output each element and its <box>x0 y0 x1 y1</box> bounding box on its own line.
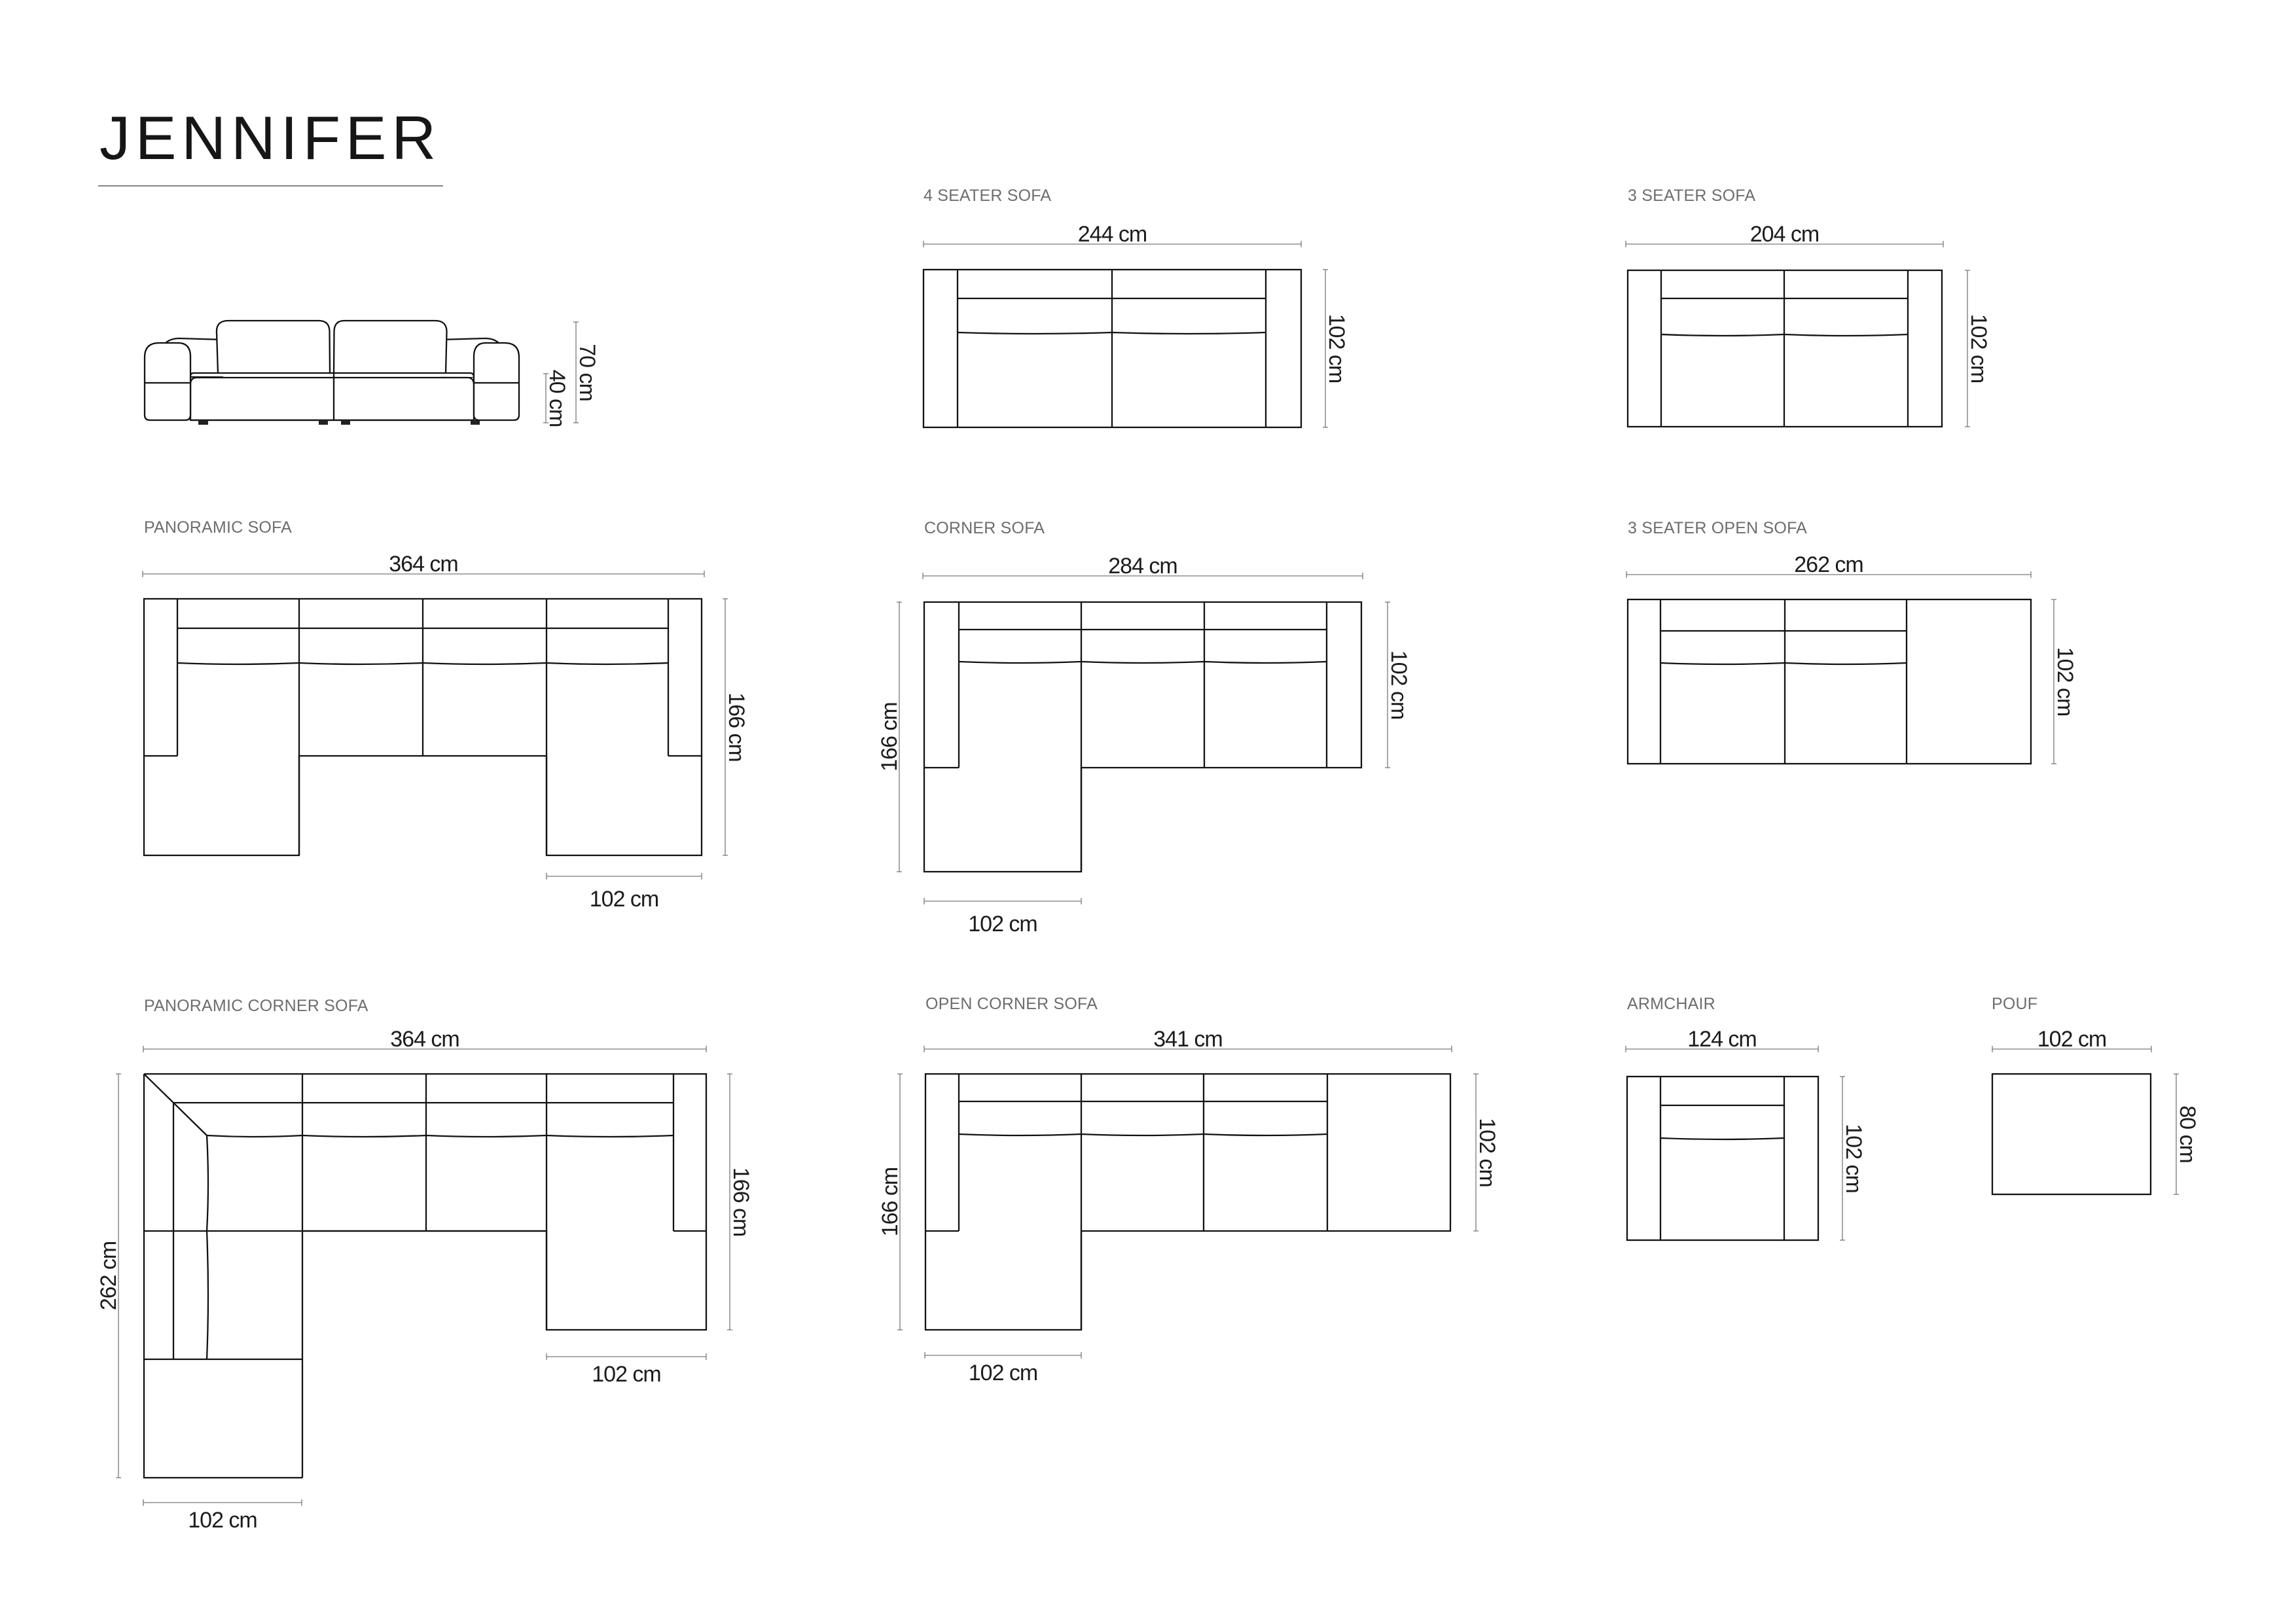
svg-text:4 SEATER SOFA: 4 SEATER SOFA <box>924 187 1051 205</box>
svg-text:166 cm: 166 cm <box>724 692 749 762</box>
svg-text:102 cm: 102 cm <box>2053 647 2077 717</box>
svg-text:JENNIFER: JENNIFER <box>99 103 441 172</box>
svg-text:244 cm: 244 cm <box>1078 222 1147 247</box>
svg-text:102 cm: 102 cm <box>590 887 659 912</box>
svg-text:204 cm: 204 cm <box>1750 222 1820 247</box>
svg-text:341 cm: 341 cm <box>1153 1027 1223 1052</box>
svg-text:40 cm: 40 cm <box>545 370 569 427</box>
svg-text:102 cm: 102 cm <box>188 1508 257 1533</box>
svg-text:364 cm: 364 cm <box>389 552 458 577</box>
svg-text:PANORAMIC CORNER SOFA: PANORAMIC CORNER SOFA <box>144 997 368 1015</box>
svg-text:OPEN CORNER SOFA: OPEN CORNER SOFA <box>925 995 1098 1013</box>
svg-text:284 cm: 284 cm <box>1108 554 1177 579</box>
svg-text:102 cm: 102 cm <box>1475 1118 1499 1187</box>
svg-text:CORNER SOFA: CORNER SOFA <box>924 519 1045 537</box>
svg-text:80 cm: 80 cm <box>2175 1105 2200 1163</box>
svg-text:3 SEATER OPEN SOFA: 3 SEATER OPEN SOFA <box>1628 519 1807 537</box>
svg-text:262 cm: 262 cm <box>96 1241 121 1311</box>
svg-text:102 cm: 102 cm <box>1386 651 1411 720</box>
svg-text:102 cm: 102 cm <box>1324 314 1349 383</box>
svg-text:102 cm: 102 cm <box>2037 1027 2107 1052</box>
svg-text:ARMCHAIR: ARMCHAIR <box>1627 995 1715 1013</box>
svg-text:POUF: POUF <box>1992 995 2037 1013</box>
svg-text:PANORAMIC SOFA: PANORAMIC SOFA <box>144 518 292 537</box>
svg-text:166 cm: 166 cm <box>728 1168 753 1237</box>
svg-text:262 cm: 262 cm <box>1794 552 1863 577</box>
svg-text:102 cm: 102 cm <box>969 1361 1038 1385</box>
svg-text:364 cm: 364 cm <box>390 1027 459 1052</box>
svg-text:102 cm: 102 cm <box>1841 1124 1866 1193</box>
svg-text:70 cm: 70 cm <box>575 344 600 401</box>
svg-text:124 cm: 124 cm <box>1687 1027 1757 1052</box>
svg-text:102 cm: 102 cm <box>968 912 1037 936</box>
svg-text:3 SEATER SOFA: 3 SEATER SOFA <box>1628 187 1755 205</box>
svg-text:166 cm: 166 cm <box>878 1168 903 1237</box>
svg-text:102 cm: 102 cm <box>592 1362 661 1387</box>
svg-text:166 cm: 166 cm <box>877 702 902 772</box>
svg-text:102 cm: 102 cm <box>1966 314 1991 383</box>
